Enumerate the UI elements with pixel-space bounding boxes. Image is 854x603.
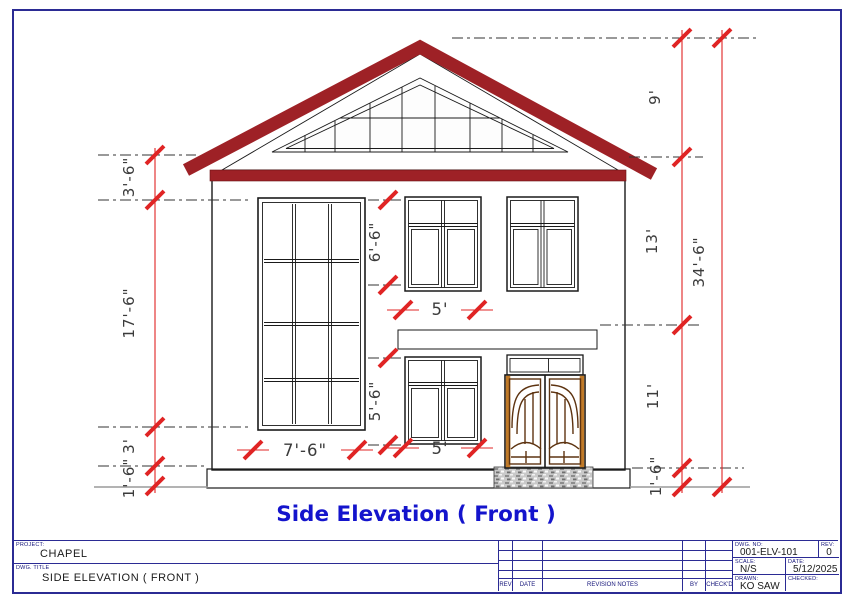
project-cell: PROJECT: CHAPEL — [14, 541, 498, 564]
checked-cell: CHECKED: — [786, 575, 839, 591]
title-block: PROJECT: CHAPEL DWG. TITLE SIDE ELEVATIO… — [14, 540, 838, 591]
dwg-title-value: SIDE ELEVATION ( FRONT ) — [42, 572, 199, 584]
title-block-left: PROJECT: CHAPEL DWG. TITLE SIDE ELEVATIO… — [14, 541, 498, 591]
rev-header-checkd: CHECK'D — [706, 579, 733, 591]
drawn-cell: DRAWN: KO SAW — [733, 575, 786, 591]
scale-value: N/S — [733, 565, 785, 575]
rev-header-rev: REV — [499, 579, 513, 591]
checked-label: CHECKED: — [786, 575, 839, 582]
dwg-title-cell: DWG. TITLE SIDE ELEVATION ( FRONT ) — [14, 564, 498, 591]
project-label: PROJECT: — [14, 541, 498, 548]
scale-cell: SCALE: N/S — [733, 558, 786, 575]
rev-header-notes: REVISION NOTES — [543, 579, 683, 591]
date-value: 5/12/2025 — [786, 565, 839, 575]
project-value: CHAPEL — [40, 548, 88, 560]
dwg-title-label: DWG. TITLE — [14, 564, 498, 571]
rev-cell: REV: 0 — [819, 541, 839, 558]
title-block-right: DWG. NO: 001-ELV-101 REV: 0 SCALE: N/S D… — [732, 541, 839, 591]
rev-value: 0 — [819, 548, 839, 558]
revision-table: REV DATE REVISION NOTES BY CHECK'D — [498, 541, 733, 591]
drawn-value: KO SAW — [733, 582, 785, 591]
rev-header-date: DATE — [513, 579, 543, 591]
sheet-border — [12, 9, 842, 594]
dwg-no-cell: DWG. NO: 001-ELV-101 — [733, 541, 819, 558]
drawing-sheet: 3'-6" 17'-6" 3' 1'-6" 6'-6" 5' 5'-6" 5' … — [0, 0, 854, 603]
date-cell: DATE: 5/12/2025 — [786, 558, 839, 575]
rev-header-by: BY — [683, 579, 706, 591]
dwg-no-value: 001-ELV-101 — [733, 548, 818, 558]
